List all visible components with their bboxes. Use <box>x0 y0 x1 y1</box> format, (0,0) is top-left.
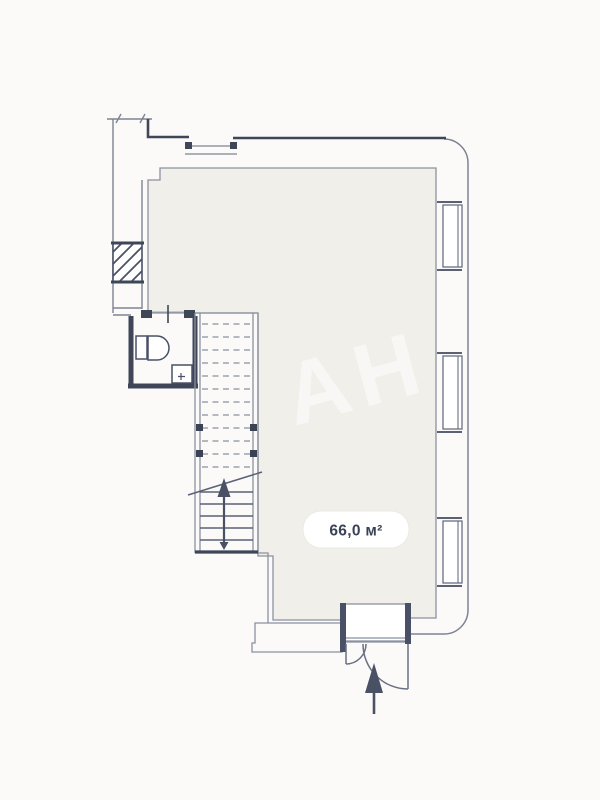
door-jamb-icon <box>340 603 346 652</box>
stair-post-icon <box>196 424 203 431</box>
door-jamb-icon <box>141 310 152 318</box>
hatched-wall <box>111 243 144 282</box>
window-jamb-icon <box>185 142 192 149</box>
stair-post-icon <box>196 450 203 457</box>
stair-post-icon <box>250 450 257 457</box>
porch-outline <box>252 623 342 652</box>
area-label: 66,0 м² <box>329 523 382 540</box>
window-jamb-icon <box>230 142 237 149</box>
door-jamb-icon <box>405 603 411 644</box>
floor-plan-image: АН <box>0 0 600 800</box>
area-badge: 66,0 м² <box>303 511 409 548</box>
toilet-icon <box>136 336 169 360</box>
sink-icon <box>172 365 192 383</box>
floor-plan-svg: АН <box>0 0 600 800</box>
stair-post-icon <box>250 424 257 431</box>
door-jamb-icon <box>184 310 195 318</box>
